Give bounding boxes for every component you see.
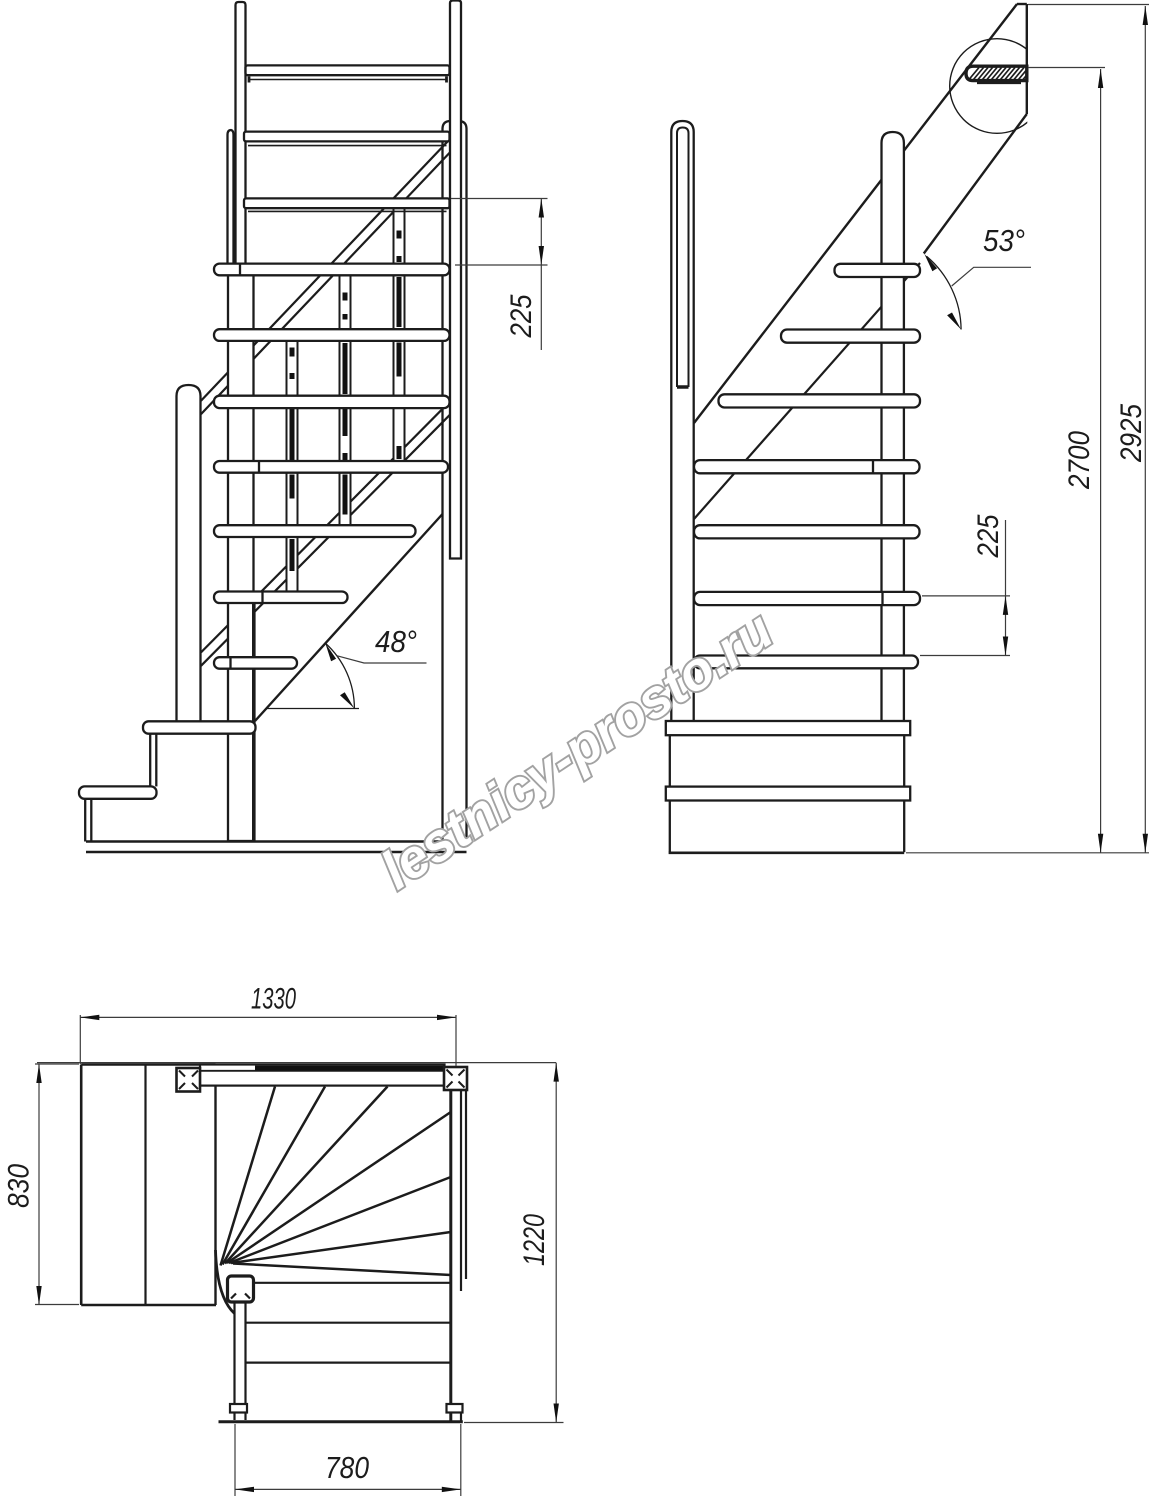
svg-text:48°: 48° [375,624,417,659]
svg-text:1220: 1220 [518,1214,551,1266]
svg-text:225: 225 [505,294,538,338]
svg-text:225: 225 [972,514,1005,558]
svg-text:780: 780 [325,1450,369,1485]
svg-text:53°: 53° [983,223,1025,258]
svg-text:2925: 2925 [1115,404,1148,463]
svg-text:2700: 2700 [1063,431,1096,490]
svg-text:1330: 1330 [251,983,296,1016]
svg-text:830: 830 [3,1164,36,1208]
